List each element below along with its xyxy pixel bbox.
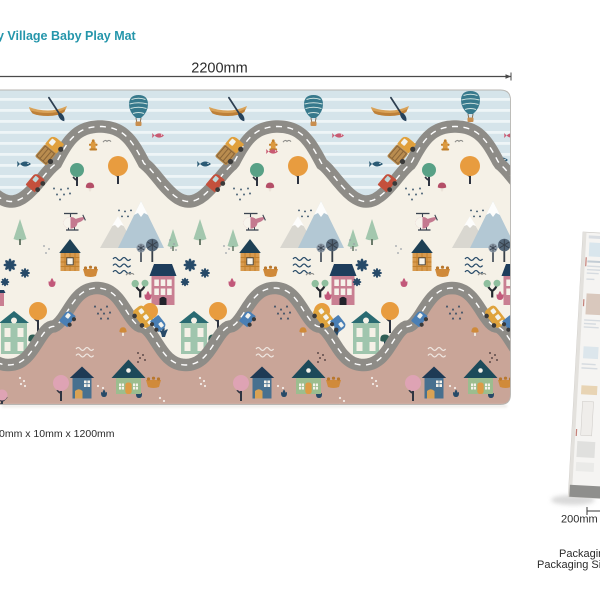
svg-text:2200mm: 2200mm — [191, 61, 247, 77]
svg-text:Packaging Size: 200m: Packaging Size: 200m — [537, 559, 600, 571]
svg-text:200mm: 200mm — [561, 514, 598, 526]
svg-text:y Village Baby Play Mat: y Village Baby Play Mat — [0, 29, 137, 43]
svg-text:0mm x 10mm x 1200mm: 0mm x 10mm x 1200mm — [0, 428, 115, 440]
